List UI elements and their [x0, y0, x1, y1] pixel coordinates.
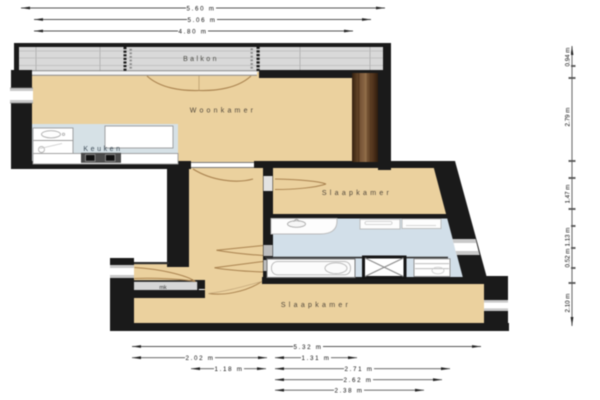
svg-text:Balkon: Balkon	[183, 56, 219, 63]
svg-text:2.02 m: 2.02 m	[185, 355, 214, 362]
svg-text:1.13 m: 1.13 m	[565, 228, 572, 247]
svg-text:2.38 m: 2.38 m	[334, 388, 363, 395]
svg-text:mk: mk	[159, 285, 167, 291]
svg-text:2.62 m: 2.62 m	[343, 377, 372, 384]
svg-text:4.80 m: 4.80 m	[178, 29, 207, 36]
svg-text:2.71 m: 2.71 m	[344, 366, 373, 373]
svg-text:Slaapkamer: Slaapkamer	[322, 190, 392, 197]
svg-text:0.94 m: 0.94 m	[565, 48, 572, 67]
svg-text:Woonkamer: Woonkamer	[190, 108, 256, 115]
svg-text:Slaapkamer: Slaapkamer	[281, 302, 351, 309]
svg-text:1.47 m: 1.47 m	[565, 185, 572, 204]
svg-text:5.32 m: 5.32 m	[293, 344, 322, 351]
svg-text:2.10 m: 2.10 m	[565, 294, 572, 313]
svg-text:5.60 m: 5.60 m	[186, 6, 215, 13]
svg-text:5.06 m: 5.06 m	[187, 17, 216, 24]
svg-text:0.52 m: 0.52 m	[565, 249, 572, 268]
svg-text:2.79 m: 2.79 m	[565, 108, 572, 127]
svg-text:1.31 m: 1.31 m	[301, 355, 330, 362]
svg-text:Keuken: Keuken	[83, 146, 122, 153]
svg-text:1.18 m: 1.18 m	[214, 366, 243, 373]
